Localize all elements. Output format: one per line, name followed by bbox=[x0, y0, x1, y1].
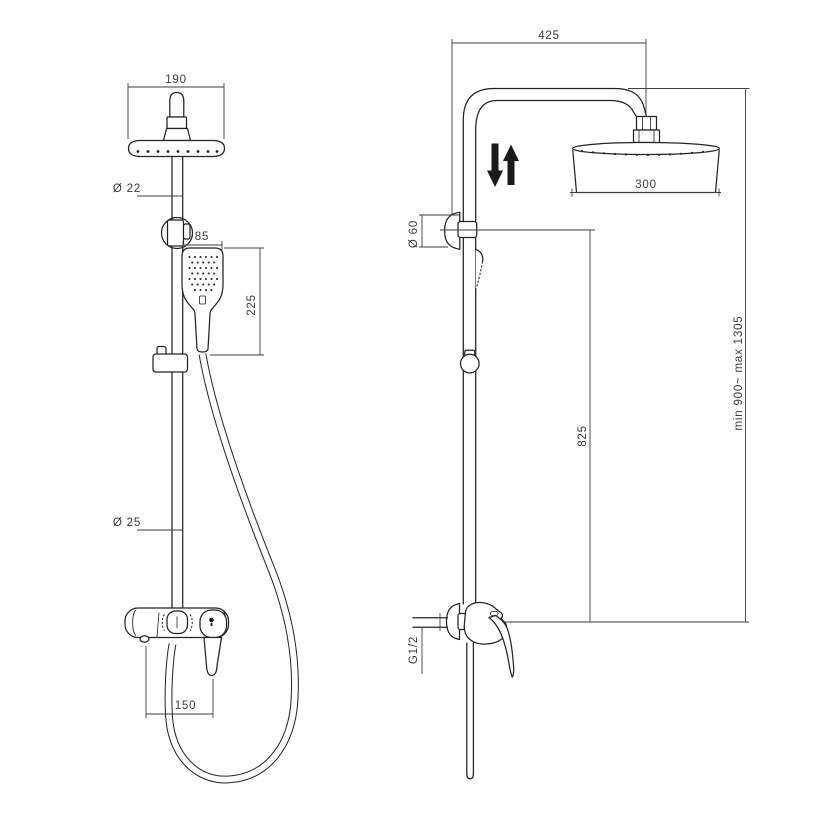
technical-drawing bbox=[0, 0, 826, 826]
wall-bracket-front bbox=[162, 218, 193, 249]
dim-label-head-width: 190 bbox=[165, 74, 187, 86]
overhead-shower-front bbox=[129, 93, 225, 157]
dim-label-head-diameter: 300 bbox=[635, 179, 657, 191]
dim-label-column-height-range: min 900~ max 1305 bbox=[733, 316, 745, 431]
hand-shower-side bbox=[476, 250, 483, 289]
dim-label-arm-reach: 425 bbox=[538, 30, 560, 42]
mixer-lever-front bbox=[200, 610, 227, 676]
dimension-arm-reach bbox=[452, 39, 646, 214]
wall-bracket-side bbox=[445, 212, 477, 249]
height-adjust-arrows-icon bbox=[487, 144, 519, 188]
dimension-inlet-connection bbox=[422, 613, 440, 674]
front-view bbox=[125, 83, 295, 780]
hand-shower-front bbox=[182, 248, 223, 352]
head-connector-side bbox=[634, 117, 660, 143]
side-view bbox=[413, 39, 750, 779]
dim-label-inlet-connection: G1/2 bbox=[408, 635, 420, 663]
dim-label-handshower-width: 85 bbox=[195, 231, 209, 243]
dim-label-handshower-length: 225 bbox=[246, 294, 258, 316]
dimension-column-height-range bbox=[503, 89, 750, 623]
mixer-front bbox=[125, 608, 229, 676]
shower-hose-front bbox=[168, 354, 294, 780]
dim-label-wall-bracket-diameter: Ø 60 bbox=[408, 219, 420, 247]
dim-label-rail-height: 825 bbox=[577, 425, 589, 447]
mixer-spout-outlet bbox=[140, 636, 149, 642]
mixer-side bbox=[447, 603, 514, 678]
technical-drawing-canvas: 190 Ø 22 85 225 Ø 25 150 425 300 Ø 60 82… bbox=[0, 0, 826, 826]
dim-label-upper-pipe-diameter: Ø 22 bbox=[113, 183, 141, 195]
lever-shower-icon bbox=[209, 618, 214, 623]
riser-column-side bbox=[463, 89, 646, 605]
inlet-stub-side bbox=[413, 618, 448, 627]
dim-label-lower-pipe-diameter: Ø 25 bbox=[113, 517, 141, 529]
shower-hose-side bbox=[467, 643, 474, 779]
dim-label-mixer-ports-distance: 150 bbox=[175, 700, 197, 712]
